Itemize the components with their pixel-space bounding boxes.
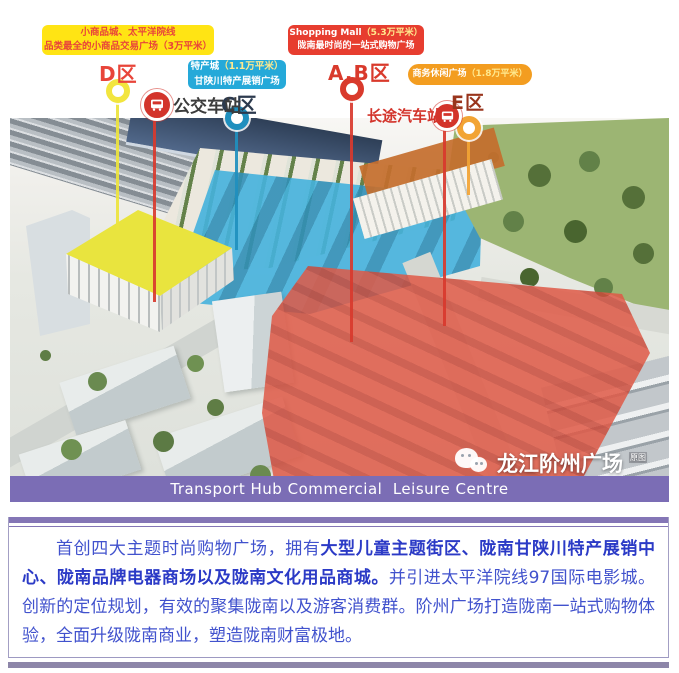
zone-ab-label: A.B区 — [328, 57, 391, 86]
leader-line-c — [235, 127, 238, 250]
wechat-icon — [455, 448, 491, 478]
bottom-divider-bar — [8, 662, 669, 668]
leader-line-citybus — [153, 116, 156, 302]
callout-line: 特产城（1.1万平米） — [188, 60, 286, 74]
bus-icon — [141, 89, 173, 121]
callout-line: 小商品城、太平洋院线 — [42, 26, 214, 40]
callout-line: 陇南最时尚的一站式购物广场 — [288, 40, 424, 54]
photo-caption-banner: Transport Hub Commercial Leisure Centre — [10, 476, 669, 502]
watermark: 龙江阶州广场 原图 — [455, 448, 647, 478]
leader-line-coach — [443, 126, 446, 326]
description-top-band — [9, 517, 668, 523]
description-box: 首创四大主题时尚购物广场，拥有大型儿童主题街区、陇南甘陕川特产展销中心、陇南品牌… — [8, 517, 669, 658]
zone-d-label: D区 — [99, 58, 138, 87]
street-trees — [40, 350, 51, 361]
leader-line-d — [116, 100, 119, 230]
callout-business-leisure: 商务休闲广场（1.8万平米） — [408, 64, 532, 85]
city-bus-station-label: 公交车站 — [173, 92, 241, 117]
callout-line: 甘陕川特产展销广场 — [188, 75, 286, 89]
callout-small-commodity: 小商品城、太平洋院线 品类最全的小商品交易广场（3万平米） — [42, 25, 214, 55]
callout-specialty-city: 特产城（1.1万平米） 甘陕川特产展销广场 — [188, 60, 286, 89]
promo-page: 龙江阶州广场 原图 Transport Hub Commercial Leisu… — [0, 0, 679, 673]
coach-station-label: 长途汽车站 — [367, 105, 442, 126]
zone-e-label: E区 — [451, 88, 485, 115]
leader-line-ab — [350, 98, 353, 342]
watermark-suffix: 原图 — [629, 452, 647, 463]
description-paragraph: 首创四大主题时尚购物广场，拥有大型儿童主题街区、陇南甘陕川特产展销中心、陇南品牌… — [9, 527, 668, 651]
callout-line: 商务休闲广场（1.8万平米） — [408, 68, 532, 82]
callout-line: Shopping Mall（5.3万平米） — [288, 27, 424, 41]
callout-line: 品类最全的小商品交易广场（3万平米） — [42, 40, 214, 54]
aerial-rendering-image[interactable]: 龙江阶州广场 原图 Transport Hub Commercial Leisu… — [10, 118, 669, 502]
leader-line-e — [467, 137, 470, 195]
watermark-text: 龙江阶州广场 — [497, 448, 623, 478]
callout-shopping-mall: Shopping Mall（5.3万平米） 陇南最时尚的一站式购物广场 — [288, 25, 424, 55]
